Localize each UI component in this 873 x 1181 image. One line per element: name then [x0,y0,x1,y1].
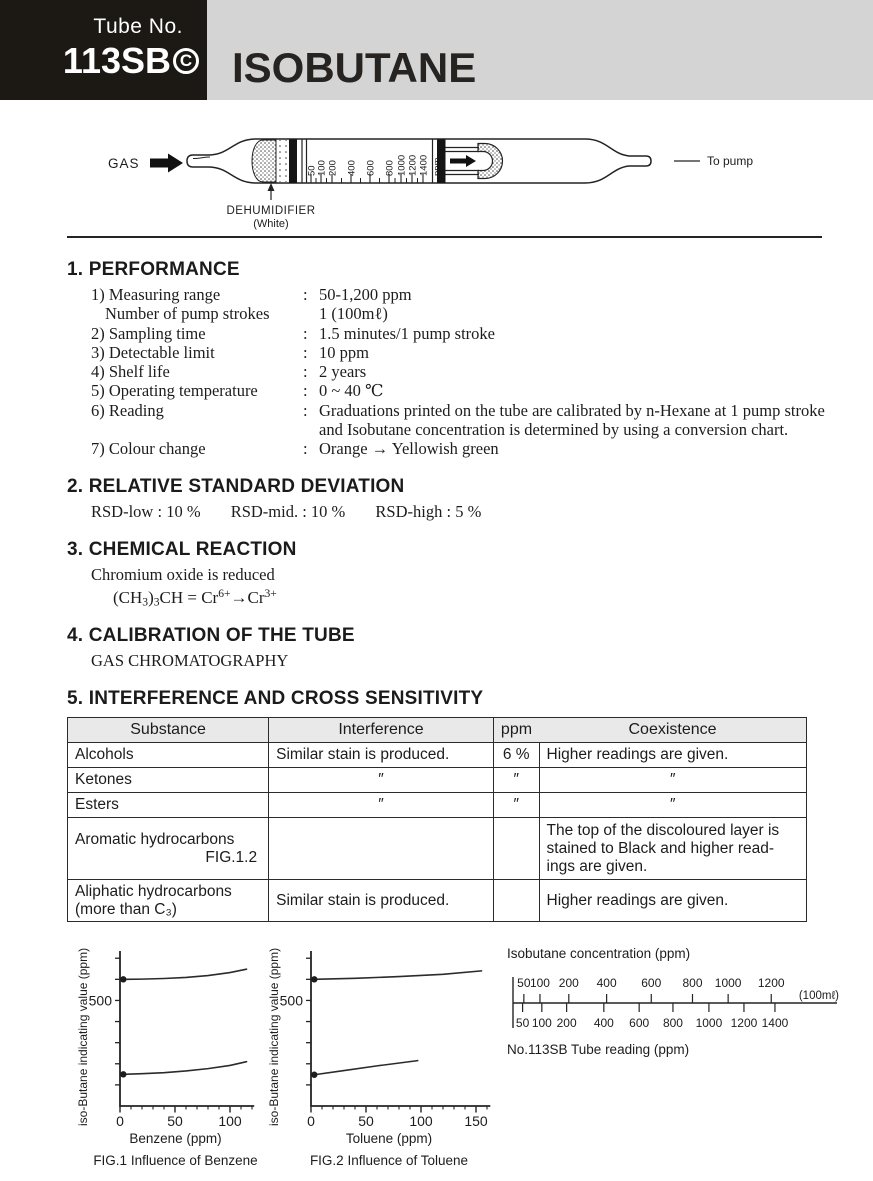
item-value: 2 years [319,362,806,381]
rsd-value: 5 % [455,502,481,521]
formula-part: (CH [113,587,142,606]
rsd-label: RSD-low [91,502,153,521]
item-colon: : [303,324,319,343]
gas-arrow-icon [150,154,183,173]
cell-ppm: ″ [493,768,539,793]
graduation-label: 200 [328,160,339,176]
series-lower-curve [314,1061,417,1075]
bottom-tick-label: 50 [516,1016,530,1030]
item-colon: : [303,362,319,381]
x-tick-label: 50 [167,1113,183,1129]
top-tick-label: 1200 [758,976,785,990]
y-tick-label: 500 [89,993,113,1009]
bottom-tick-label: 1400 [762,1016,789,1030]
graduation-label: 600 [366,160,377,176]
top-tick-label: 50 [517,976,531,990]
cell-coexistence: ″ [539,793,806,818]
x-tick-label: 0 [307,1113,315,1129]
substance-line2: (more than C₃) [75,901,261,919]
coexistence-line: stained to Black and higher read- [547,840,799,858]
fig1-caption: FIG.1 Influence of Benzene [90,1153,261,1168]
tube-band-left [289,140,297,184]
item-value: 1 (100mℓ) [319,304,806,323]
col-header-coexistence: Coexistence [539,718,806,743]
tube-no-label: Tube No. [0,15,199,39]
cell-ppm: ″ [493,793,539,818]
section-performance: 1. PERFORMANCE 1) Measuring range:50-1,2… [67,259,806,459]
substance-line2: FIG.1.2 [75,849,261,867]
tube-number: 113SB [63,40,171,82]
datasheet-page: Tube No. 113SB C ISOBUTANE GAS [0,0,873,1181]
fig1-y-axis-label: iso-Butane indicating value (ppm) [76,946,90,1128]
cell-ppm [493,818,539,880]
item-value: Orange → Yellowish green [319,439,806,458]
interference-table: Substance Interference ppm Coexistence A… [67,717,807,922]
fig2-y-axis-label: iso-Butane indicating value (ppm) [267,946,281,1128]
x-tick-label: 100 [218,1113,242,1129]
item-value: 1.5 minutes/1 pump stroke [319,324,806,343]
rsd-label: RSD-high [375,502,442,521]
table-row: Aromatic hydrocarbons FIG.1.2 The top of… [68,818,807,880]
chemical-body: Chromium oxide is reduced (CH3)3CH = Cr6… [67,565,806,609]
x-tick-label: 100 [409,1113,433,1129]
performance-item: Number of pump strokes1 (100mℓ) [91,304,806,323]
gas-label: GAS [108,156,140,171]
axes [311,951,490,1106]
graduation-label: 1400 [419,155,430,176]
table-header-row: Substance Interference ppm Coexistence [68,718,807,743]
masthead: Tube No. 113SB C ISOBUTANE [0,0,873,100]
fig1-x-axis-label: Benzene (ppm) [90,1131,261,1146]
top-tick-label: 1000 [715,976,742,990]
cell-substance: Esters [68,793,269,818]
rsd-colon: : [302,502,307,521]
rsd-colon: : [446,502,451,521]
item-label: 7) Colour change [91,439,303,458]
section-heading: 2. RELATIVE STANDARD DEVIATION [67,476,806,498]
formula-part: CH = Cr [160,587,219,606]
performance-item: 3) Detectable limit:10 ppm [91,343,806,362]
content: 1. PERFORMANCE 1) Measuring range:50-1,2… [0,238,806,922]
series-start-dot [120,976,126,982]
circled-c-mark: C [173,48,199,74]
cell-coexistence: Higher readings are given. [539,743,806,768]
section-heading: 4. CALIBRATION OF THE TUBE [67,625,806,647]
series-start-dot [120,1071,126,1077]
chemical-text: Chromium oxide is reduced [91,565,806,585]
section-chemical-reaction: 3. CHEMICAL REACTION Chromium oxide is r… [67,539,806,609]
table-row: Aliphatic hydrocarbons (more than C₃) Si… [68,880,807,922]
item-value: 50-1,200 ppm [319,285,806,304]
item-colon: : [303,343,319,362]
bottom-tick-label: 1000 [696,1016,723,1030]
item-value: 10 ppm [319,343,806,362]
item-label: 3) Detectable limit [91,343,303,362]
item-label: 2) Sampling time [91,324,303,343]
figures-row: iso-Butane indicating value (ppm) 500050… [76,946,873,1168]
item-colon [303,420,319,439]
section-heading: 3. CHEMICAL REACTION [67,539,806,561]
item-label: 1) Measuring range [91,285,303,304]
cell-substance: Ketones [68,768,269,793]
item-value: 0 ~ 40 ℃ [319,381,806,400]
bottom-tick-label: 800 [663,1016,683,1030]
fig2-x-axis-label: Toluene (ppm) [281,1131,497,1146]
top-tick-label: 800 [682,976,702,990]
bottom-tick-label: 600 [629,1016,649,1030]
figure-2: iso-Butane indicating value (ppm) 500050… [267,946,497,1168]
coexistence-line: The top of the discoloured layer is [547,822,799,840]
graduation-label: 800 [385,160,396,176]
cell-interference: Similar stain is produced. [269,880,494,922]
item-colon: : [303,401,319,420]
formula-part: →Cr [231,587,265,606]
conversion-bottom-label: No.113SB Tube reading (ppm) [507,1042,841,1057]
item-label [91,420,303,439]
cell-interference: ″ [269,793,494,818]
x-tick-label: 0 [116,1113,124,1129]
cell-interference [269,818,494,880]
cell-ppm: 6 % [493,743,539,768]
bottom-tick-label: 200 [557,1016,577,1030]
fig1-column: 500050100 Benzene (ppm) FIG.1 Influence … [90,946,261,1168]
performance-item: 4) Shelf life:2 years [91,362,806,381]
top-tick-label: 600 [641,976,661,990]
item-colon [303,304,319,323]
rsd-value: 10 % [166,502,200,521]
graduation-label: 400 [347,160,358,176]
item-label: 4) Shelf life [91,362,303,381]
item-label: Number of pump strokes [91,304,303,323]
substance-line1: Aromatic hydrocarbons [75,831,261,849]
rsd-values: RSD-low : 10 % RSD-mid. : 10 % RSD-high … [67,502,806,522]
fig1-plot: 500050100 [90,946,261,1128]
x-tick-label: 50 [358,1113,374,1129]
performance-item: 2) Sampling time:1.5 minutes/1 pump stro… [91,324,806,343]
bottom-tick-label: 400 [594,1016,614,1030]
dehumidifier-dots [277,140,288,182]
top-tick-label: 200 [559,976,579,990]
cell-coexistence: Higher readings are given. [539,880,806,922]
rsd-value: 10 % [311,502,345,521]
series-upper-curve [314,971,481,979]
performance-item: 5) Operating temperature:0 ~ 40 ℃ [91,381,806,400]
graduation-label: 1200 [408,155,419,176]
series-start-dot [311,1072,317,1078]
chemical-formula: (CH3)3CH = Cr6+→Cr3+ [91,587,806,609]
rsd-item: RSD-high : 5 % [375,502,481,521]
formula-sup: 6+ [218,587,230,600]
callout-arrow-icon [268,183,275,191]
fig2-caption: FIG.2 Influence of Toluene [281,1153,497,1168]
item-colon: : [303,285,319,304]
series-lower-curve [123,1062,246,1075]
tube-no-line: 113SB C [0,40,199,82]
substance-line1: Aliphatic hydrocarbons [75,883,261,901]
coexistence-line: ings are given. [547,858,799,876]
fig2-plot: 500050100150 [281,946,497,1128]
bottom-tick-label: 100 [532,1016,552,1030]
graduation-label: 1000 [397,155,408,176]
dehumidifier-label: DEHUMIDIFIER [226,205,315,217]
cell-ppm [493,880,539,922]
unit-note: (100mℓ) [799,990,839,1002]
tube-number-box: Tube No. 113SB C [0,0,207,100]
page-title: ISOBUTANE [232,44,476,92]
table-row: Ketones ″ ″ ″ [68,768,807,793]
rsd-item: RSD-mid. : 10 % [231,502,346,521]
axes [120,951,254,1106]
y-tick-label: 500 [280,993,304,1009]
section-interference: 5. INTERFERENCE AND CROSS SENSITIVITY Su… [67,688,806,922]
bottom-tick-label: 1200 [731,1016,758,1030]
series-start-dot [311,976,317,982]
graduation-label: 100 [317,160,328,176]
cell-coexistence: The top of the discoloured layer is stai… [539,818,806,880]
performance-list: 1) Measuring range:50-1,200 ppm Number o… [67,285,806,459]
cell-interference: Similar stain is produced. [269,743,494,768]
performance-item: 1) Measuring range:50-1,200 ppm [91,285,806,304]
section-heading: 5. INTERFERENCE AND CROSS SENSITIVITY [67,688,806,710]
tube-band-right [437,140,446,184]
item-colon: : [303,439,319,458]
table-row: Alcohols Similar stain is produced. 6 % … [68,743,807,768]
col-header-interference: Interference [269,718,494,743]
item-colon: : [303,381,319,400]
conversion-chart: Isobutane concentration (ppm) 5010020040… [507,946,841,1057]
cell-coexistence: ″ [539,768,806,793]
section-rsd: 2. RELATIVE STANDARD DEVIATION RSD-low :… [67,476,806,522]
top-tick-label: 100 [530,976,550,990]
rsd-label: RSD-mid. [231,502,298,521]
col-header-ppm: ppm [493,718,539,743]
performance-item: 6) Reading:Graduations printed on the tu… [91,401,806,420]
performance-item-continued: and Isobutane concentration is determine… [91,420,806,439]
table-row: Esters ″ ″ ″ [68,793,807,818]
calibration-text: GAS CHROMATOGRAPHY [67,651,806,671]
cell-substance: Aliphatic hydrocarbons (more than C₃) [68,880,269,922]
cell-interference: ″ [269,768,494,793]
col-header-substance: Substance [68,718,269,743]
conversion-top-label: Isobutane concentration (ppm) [507,946,841,961]
fig2-column: 500050100150 Toluene (ppm) FIG.2 Influen… [281,946,497,1168]
dehumidifier-plug [252,140,276,182]
section-calibration: 4. CALIBRATION OF THE TUBE GAS CHROMATOG… [67,625,806,671]
cell-substance: Alcohols [68,743,269,768]
to-pump-label: To pump [707,154,753,168]
item-label: 6) Reading [91,401,303,420]
dehumidifier-color-label: (White) [253,218,288,230]
figure-1: iso-Butane indicating value (ppm) 500050… [76,946,261,1168]
item-value-line2: and Isobutane concentration is determine… [319,420,806,439]
x-tick-label: 150 [464,1113,488,1129]
item-value: Graduations printed on the tube are cali… [319,401,825,420]
section-heading: 1. PERFORMANCE [67,259,806,281]
top-tick-label: 400 [597,976,617,990]
performance-item: 7) Colour change:Orange → Yellowish gree… [91,439,806,458]
tube-diagram: GAS 50100200400600800100012001400ppm To … [80,126,860,232]
series-upper-curve [123,970,246,980]
conversion-scale: 5010020040060080010001200501002004006008… [507,970,841,1034]
item-label: 5) Operating temperature [91,381,303,400]
cell-substance: Aromatic hydrocarbons FIG.1.2 [68,818,269,880]
rsd-item: RSD-low : 10 % [91,502,201,521]
rsd-colon: : [157,502,162,521]
formula-sup: 3+ [265,587,277,600]
